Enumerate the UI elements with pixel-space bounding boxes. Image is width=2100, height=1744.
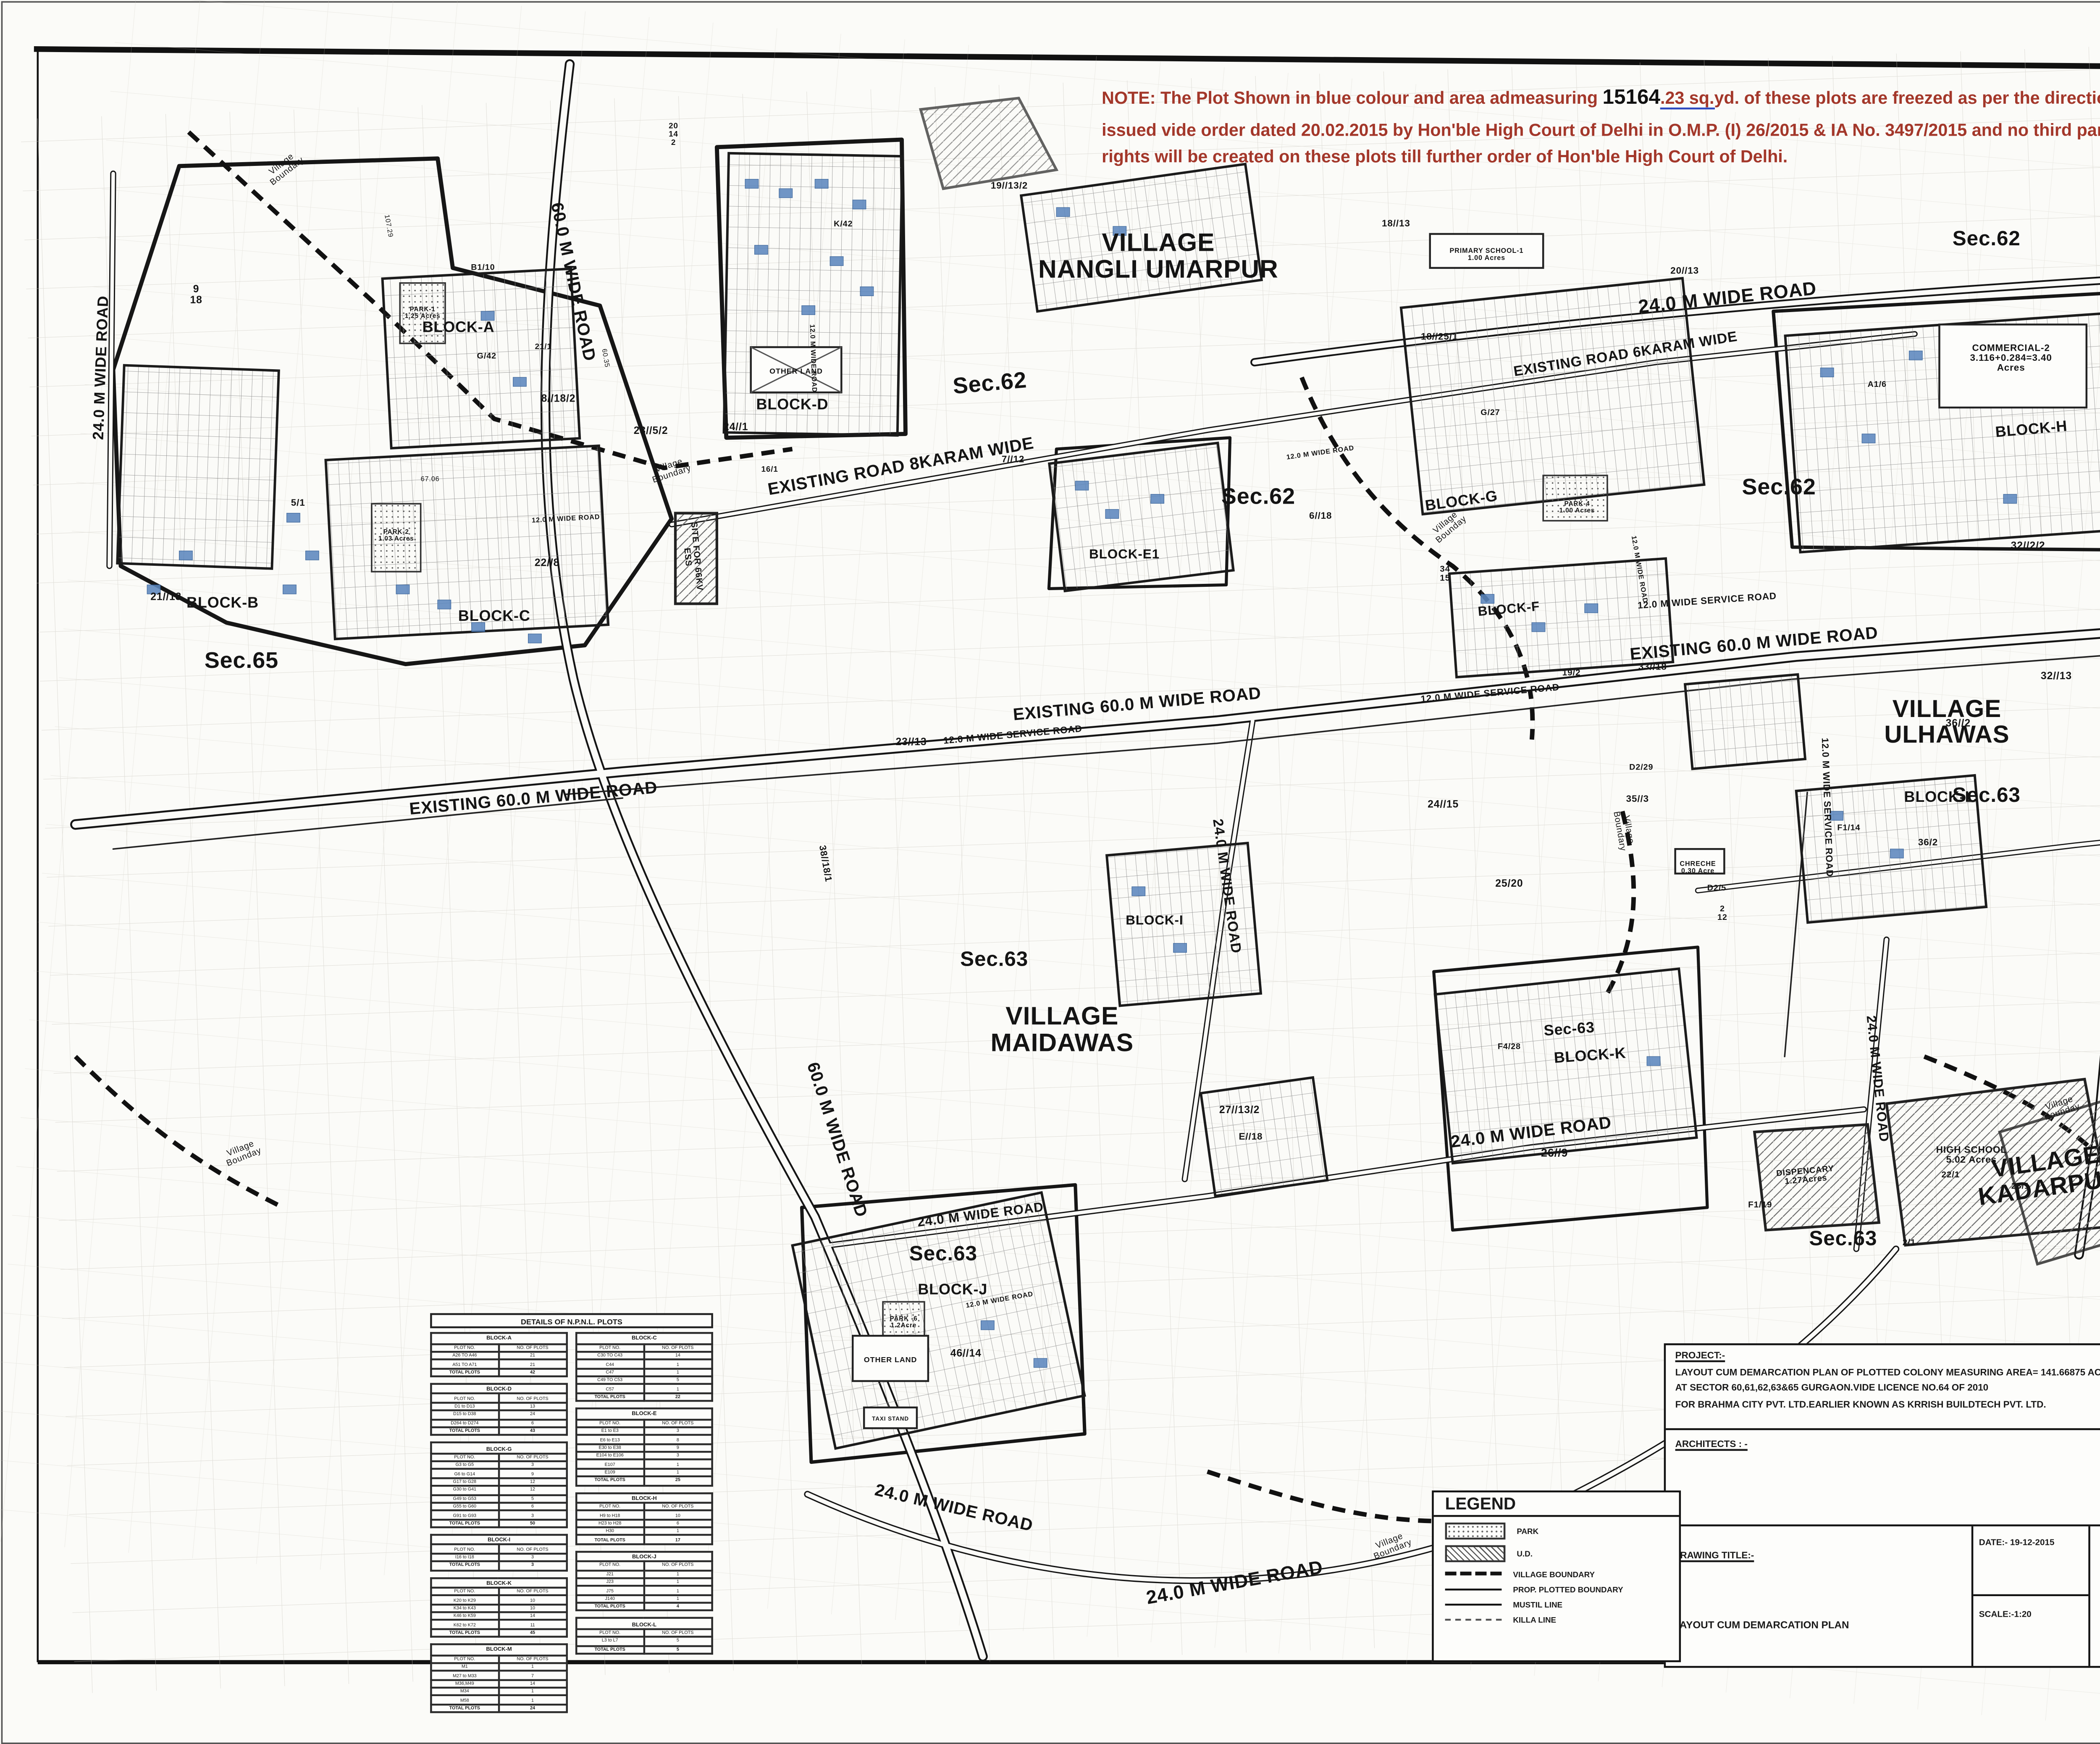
column-header: PLOT NO. xyxy=(576,1562,643,1570)
khasra-label: 27//13/2 xyxy=(1219,1104,1260,1116)
table-row: E104 to E1063 xyxy=(576,1452,712,1460)
sw-dashthick-icon xyxy=(1445,1572,1502,1576)
table-row: J211 xyxy=(576,1570,712,1578)
npnl-block-table: BLOCK-JPLOT NO.NO. OF PLOTSJ211J231J751J… xyxy=(575,1550,713,1612)
khasra-label: 24//1 xyxy=(723,421,748,433)
khasra-label: 36/2 xyxy=(1918,837,1938,847)
table-row: H23 to H286 xyxy=(576,1519,712,1528)
title-block: PROJECT:- LAYOUT CUM DEMARCATION PLAN OF… xyxy=(1664,1343,2100,1668)
frozen-plot xyxy=(306,551,319,560)
khasra-label: 19/2 xyxy=(1562,668,1581,678)
owner-sign-cell: For Brahma City Private Limited Authoris… xyxy=(2090,1526,2100,1666)
npnl-block-name: BLOCK-A xyxy=(431,1333,567,1343)
table-row: TOTAL PLOTS42 xyxy=(431,1368,567,1376)
sw-dashthin-icon xyxy=(1445,1619,1502,1621)
khasra-label: 32//13 xyxy=(2041,670,2072,682)
column-header: NO. OF PLOTS xyxy=(498,1394,567,1403)
frozen-plot xyxy=(528,634,541,643)
project-line: AT SECTOR 60,61,62,63&65 GURGAON.VIDE LI… xyxy=(1675,1383,2100,1395)
table-row: J1401 xyxy=(576,1594,712,1603)
khasra-label: 23/1 xyxy=(2011,1181,2030,1191)
khasra-label: 22//8 xyxy=(535,557,559,569)
khasra-label: G/42 xyxy=(477,351,496,360)
date-scale-cell: DATE:- 19-12-2015 SCALE:-1:20 xyxy=(1973,1526,2090,1666)
frozen-plot xyxy=(1132,887,1145,896)
site-label-high-school: HIGH SCHOOL5.02 Acres xyxy=(1936,1144,2007,1165)
drawing-title-cell: DRAWING TITLE:- LAYOUT CUM DEMARCATION P… xyxy=(1666,1526,1973,1666)
table-row: M36,M4914 xyxy=(431,1679,567,1688)
table-row: K46 to K5914 xyxy=(431,1612,567,1621)
frozen-plot xyxy=(1481,594,1494,604)
architects-label: ARCHITECTS : - xyxy=(1675,1439,1748,1451)
khasra-label: 8//18/2 xyxy=(541,393,576,404)
sector-label: Sec.65 xyxy=(205,648,278,673)
site-label-taxi-stand: TAXI STAND xyxy=(872,1416,909,1422)
block-label: BLOCK-L xyxy=(1904,788,1975,805)
khasra-label: 35//3 xyxy=(1626,793,1649,804)
khasra-label: 23//5/2 xyxy=(634,425,668,436)
column-header: NO. OF PLOTS xyxy=(643,1562,712,1570)
npnl-block-table: BLOCK-HPLOT NO.NO. OF PLOTSH9 to H1810H2… xyxy=(575,1492,713,1545)
table-row: C571 xyxy=(576,1385,712,1393)
table-row: D15 to D3824 xyxy=(431,1410,567,1419)
table-row: TOTAL PLOTS5 xyxy=(576,1645,712,1654)
npnl-title: DETAILS OF N.P.N.L. PLOTS xyxy=(430,1313,713,1329)
dim-label: 67.06 xyxy=(421,475,440,483)
table-row: E1091 xyxy=(576,1468,712,1477)
table-row: M27 to M337 xyxy=(431,1671,567,1680)
project-section: PROJECT:- LAYOUT CUM DEMARCATION PLAN OF… xyxy=(1666,1345,2100,1430)
table-row: TOTAL PLOTS24 xyxy=(431,1704,567,1712)
legend-label: VILLAGE BOUNDARY xyxy=(1513,1569,1595,1578)
khasra-label: 5/1 xyxy=(291,497,305,508)
khasra-label: 23//13 xyxy=(895,736,927,748)
khasra-label: 24//15 xyxy=(1428,798,1459,810)
table-row: TOTAL PLOTS45 xyxy=(431,1629,567,1637)
frozen-area-value: 15164 xyxy=(1603,87,1660,110)
block-label: BLOCK-I xyxy=(1126,913,1183,927)
block-label: BLOCK-C xyxy=(458,607,530,624)
legend-item: PROP. PLOTTED BOUNDARY xyxy=(1445,1584,1668,1594)
frozen-plot xyxy=(1820,368,1833,377)
column-header: PLOT NO. xyxy=(431,1587,498,1596)
table-row: TOTAL PLOTS22 xyxy=(576,1393,712,1401)
table-row: G91 to G933 xyxy=(431,1511,567,1519)
block-label: BLOCK-E1 xyxy=(1089,547,1160,562)
project-label: PROJECT:- xyxy=(1675,1351,1725,1362)
frozen-plot xyxy=(755,245,768,255)
table-row: J751 xyxy=(576,1586,712,1595)
table-row: K62 to K7211 xyxy=(431,1621,567,1629)
legend-item: KILLA LINE xyxy=(1445,1615,1668,1624)
sector-label: Sec.63 xyxy=(960,948,1028,971)
column-header: NO. OF PLOTS xyxy=(643,1343,712,1352)
sector-label: Sec.62 xyxy=(1742,474,1816,499)
site-label-park4: PARK-41.00 Acres xyxy=(1559,500,1595,514)
table-row: I16 to I183 xyxy=(431,1553,567,1562)
frozen-plot xyxy=(1862,434,1875,443)
npnl-block-name: BLOCK-G xyxy=(431,1443,567,1453)
column-header: PLOT NO. xyxy=(431,1655,498,1663)
npnl-block-table: BLOCK-GPLOT NO.NO. OF PLOTSG3 to G53G6 t… xyxy=(430,1442,568,1528)
npnl-block-table: BLOCK-CPLOT NO.NO. OF PLOTSC30 TO C4314C… xyxy=(575,1332,713,1402)
frozen-plot xyxy=(1532,622,1545,632)
column-header: PLOT NO. xyxy=(576,1502,643,1511)
column-header: NO. OF PLOTS xyxy=(643,1502,712,1511)
npnl-block-table: BLOCK-KPLOT NO.NO. OF PLOTSK20 to K2910K… xyxy=(430,1576,568,1638)
table-row: G30 to G4112 xyxy=(431,1486,567,1494)
table-row: D264 to D2746 xyxy=(431,1419,567,1427)
column-header: PLOT NO. xyxy=(431,1394,498,1403)
table-row: TOTAL PLOTS50 xyxy=(431,1519,567,1528)
legend-label: PROP. PLOTTED BOUNDARY xyxy=(1513,1584,1623,1594)
khasra-label: 36//2 xyxy=(1946,717,1971,729)
sector-label: Sec.63 xyxy=(909,1242,977,1265)
frozen-plot xyxy=(981,1321,994,1330)
block-label: BLOCK-B xyxy=(186,594,259,611)
frozen-plot xyxy=(287,513,300,523)
table-row: K20 to K2910 xyxy=(431,1596,567,1604)
table-row: M341 xyxy=(431,1688,567,1696)
khasra-label: 25/20 xyxy=(1495,878,1523,889)
frozen-plot xyxy=(1056,207,1069,217)
site-label-park1: PARK-11.25 Acres xyxy=(405,306,441,320)
table-row: M11 xyxy=(431,1663,567,1671)
legend-label: PARK xyxy=(1517,1527,1538,1536)
legend-label: MUSTIL LINE xyxy=(1513,1600,1562,1609)
frozen-plot xyxy=(1909,351,1922,360)
npnl-block-name: BLOCK-K xyxy=(431,1577,567,1587)
khasra-label: 19//13/2 xyxy=(991,180,1028,191)
legend: LEGEND PARKU.D.VILLAGE BOUNDARYPROP. PLO… xyxy=(1432,1490,1681,1662)
khasra-label: 20//13 xyxy=(1670,265,1699,276)
khasra-label: 2/1 xyxy=(1903,1238,1916,1248)
column-header: PLOT NO. xyxy=(431,1545,498,1553)
block-label: BLOCK-A xyxy=(423,318,495,336)
npnl-block-name: BLOCK-E xyxy=(576,1409,712,1419)
table-row: C441 xyxy=(576,1360,712,1368)
column-header: NO. OF PLOTS xyxy=(498,1655,567,1663)
project-line: FOR BRAHMA CITY PVT. LTD.EARLIER KNOWN A… xyxy=(1675,1400,2100,1411)
sw-dots-icon xyxy=(1445,1523,1506,1540)
table-row: H301 xyxy=(576,1527,712,1536)
npnl-block-name: BLOCK-M xyxy=(431,1644,567,1655)
column-header: PLOT NO. xyxy=(576,1419,643,1427)
column-header: PLOT NO. xyxy=(431,1453,498,1461)
table-row: M581 xyxy=(431,1696,567,1705)
column-header: PLOT NO. xyxy=(576,1629,643,1637)
khasra-label: 18//25/1 xyxy=(1421,331,1458,342)
sector-label: Sec.62 xyxy=(1953,227,2021,250)
khasra-label: 46//14 xyxy=(950,1348,982,1359)
frozen-plot xyxy=(745,179,758,189)
date-value: DATE:- 19-12-2015 xyxy=(1979,1538,2055,1547)
frozen-plot xyxy=(438,600,451,609)
table-row: G17 to G2812 xyxy=(431,1478,567,1486)
frozen-plot xyxy=(396,585,409,594)
frozen-plot xyxy=(1151,494,1164,504)
khasra-label: 33//18 xyxy=(1638,662,1667,672)
khasra-label: 22/1 xyxy=(1942,1170,1960,1179)
npnl-block-name: BLOCK-I xyxy=(431,1535,567,1545)
site-label-park2: PARK-21.03 Acres xyxy=(378,528,414,542)
khasra-label: 3415 xyxy=(1440,564,1450,583)
khasra-label: 21/1 xyxy=(535,342,551,351)
khasra-label: 6//18 xyxy=(1309,510,1332,521)
scale-value: SCALE:-1:20 xyxy=(1979,1609,2032,1618)
table-row: H9 to H1810 xyxy=(576,1511,712,1519)
table-row: TOTAL PLOTS17 xyxy=(576,1536,712,1544)
frozen-plot xyxy=(779,189,792,198)
npnl-block-name: BLOCK-D xyxy=(431,1384,567,1394)
architects-section: ARCHITECTS : - SHEET NO.-1 CA/2012/58144… xyxy=(1666,1430,2100,1526)
khasra-label: 21//13 xyxy=(150,591,181,602)
block-label: BLOCK-J xyxy=(918,1280,987,1297)
frozen-plot xyxy=(1105,510,1118,519)
table-row: C30 TO C4314 xyxy=(576,1352,712,1360)
sector-label: Sec.63 xyxy=(1809,1227,1877,1250)
table-row: G55 to G606 xyxy=(431,1502,567,1511)
frozen-plot xyxy=(513,377,526,386)
khasra-label: 16/1 xyxy=(761,465,778,473)
sw-solidthick-icon xyxy=(1445,1588,1502,1590)
table-row: E6 to E138 xyxy=(576,1435,712,1444)
npnl-block-name: BLOCK-H xyxy=(576,1492,712,1502)
khasra-label: F1/19 xyxy=(1748,1200,1772,1210)
note-label: NOTE: xyxy=(1102,89,1155,108)
legend-item: MUSTIL LINE xyxy=(1445,1600,1668,1609)
site-label-park6: PARK -61.2Acre xyxy=(890,1315,917,1329)
frozen-plot xyxy=(802,306,815,315)
column-header: NO. OF PLOTS xyxy=(498,1343,567,1352)
legend-label: KILLA LINE xyxy=(1513,1615,1556,1624)
frozen-plot xyxy=(853,200,866,209)
legend-title: LEGEND xyxy=(1434,1492,1679,1517)
npnl-block-table: BLOCK-MPLOT NO.NO. OF PLOTSM11M27 to M33… xyxy=(430,1644,568,1713)
column-header: NO. OF PLOTS xyxy=(643,1629,712,1637)
khasra-label: D2/29 xyxy=(1629,763,1653,772)
table-row: E1 to E33 xyxy=(576,1427,712,1436)
court-note: NOTE: The Plot Shown in blue colour and … xyxy=(1102,83,2100,172)
khasra-label: G/27 xyxy=(1480,408,1500,417)
frozen-plot xyxy=(2003,494,2016,504)
table-row: J231 xyxy=(576,1578,712,1586)
frozen-plot xyxy=(1075,481,1088,490)
frozen-plot xyxy=(1034,1358,1047,1368)
table-row: G3 to G53 xyxy=(431,1461,567,1470)
table-row: C471 xyxy=(576,1368,712,1376)
frozen-plot xyxy=(815,179,828,189)
column-header: NO. OF PLOTS xyxy=(643,1419,712,1427)
site-label-chreche: CHRECHE0.30 Acre xyxy=(1680,860,1716,875)
village-label-maidawas: VILLAGEMAIDAWAS xyxy=(991,1001,1134,1057)
table-row: K34 to K4310 xyxy=(431,1604,567,1613)
frozen-plot xyxy=(1647,1056,1660,1066)
npnl-block-name: BLOCK-L xyxy=(576,1619,712,1629)
table-row: TOTAL PLOTS43 xyxy=(431,1427,567,1436)
table-row: L3 to L75 xyxy=(576,1637,712,1645)
legend-label: U.D. xyxy=(1517,1550,1533,1559)
legend-item: VILLAGE BOUNDARY xyxy=(1445,1569,1668,1578)
scanned-drawing-page: VILLAGENANGLI UMARPURVILLAGEULHAWASVILLA… xyxy=(0,0,2100,1744)
npnl-block-name: BLOCK-J xyxy=(576,1552,712,1562)
table-row: E30 to E389 xyxy=(576,1444,712,1452)
khasra-label: B1/10 xyxy=(471,263,495,272)
npnl-plots-panel: DETAILS OF N.P.N.L. PLOTS BLOCK-APLOT NO… xyxy=(430,1313,713,1719)
khasra-label: F1/14 xyxy=(1837,823,1860,832)
site-label-other-land: OTHER LAND xyxy=(864,1355,917,1364)
npnl-block-table: BLOCK-IPLOT NO.NO. OF PLOTSI16 to I183TO… xyxy=(430,1534,568,1571)
block-label: BLOCK-D xyxy=(756,396,829,413)
column-header: NO. OF PLOTS xyxy=(498,1587,567,1596)
sector-label: Sec.62 xyxy=(1221,483,1295,509)
frozen-plot xyxy=(1890,849,1903,858)
khasra-label: F4/28 xyxy=(1498,1042,1521,1051)
frozen-plot xyxy=(860,287,873,296)
table-row: TOTAL PLOTS25 xyxy=(576,1477,712,1485)
npnl-block-table: BLOCK-DPLOT NO.NO. OF PLOTSD1 to D1313D1… xyxy=(430,1383,568,1437)
khasra-label: K/42 xyxy=(834,219,853,229)
column-header: PLOT NO. xyxy=(431,1343,498,1352)
table-row: A26 TO A4621 xyxy=(431,1352,567,1360)
table-row: G49 to G535 xyxy=(431,1494,567,1503)
khasra-label: E//18 xyxy=(1239,1131,1263,1142)
frozen-plot xyxy=(283,585,296,594)
table-row: A51 TO A7121 xyxy=(431,1360,567,1368)
table-row: TOTAL PLOTS4 xyxy=(576,1603,712,1611)
site-label-other-land: OTHER LAND xyxy=(769,367,823,375)
npnl-block-table: BLOCK-APLOT NO.NO. OF PLOTSA26 TO A4621A… xyxy=(430,1332,568,1377)
khasra-label: 18//13 xyxy=(1382,218,1410,229)
table-row: TOTAL PLOTS3 xyxy=(431,1562,567,1570)
drawing-title: LAYOUT CUM DEMARCATION PLAN xyxy=(1673,1621,1964,1632)
sector-label: Sec-63 xyxy=(1543,1018,1595,1039)
npnl-block-name: BLOCK-C xyxy=(576,1333,712,1343)
khasra-label: D2/5 xyxy=(1707,883,1726,893)
table-row: E1071 xyxy=(576,1460,712,1468)
khasra-label: A1/6 xyxy=(1868,380,1887,389)
sw-hatch-icon xyxy=(1445,1546,1506,1563)
khasra-label: 26//9 xyxy=(1541,1146,1568,1159)
frozen-plot xyxy=(179,551,192,560)
frozen-plot xyxy=(1585,604,1598,613)
column-header: NO. OF PLOTS xyxy=(498,1545,567,1553)
table-row: C49 TO C535 xyxy=(576,1376,712,1385)
drawing-sheet: VILLAGENANGLI UMARPURVILLAGEULHAWASVILLA… xyxy=(0,0,2100,1744)
legend-item: PARK xyxy=(1445,1523,1668,1540)
khasra-label: 7//12 xyxy=(1002,454,1024,464)
column-header: PLOT NO. xyxy=(576,1343,643,1352)
frozen-plot xyxy=(830,257,843,266)
legend-item: U.D. xyxy=(1445,1546,1668,1563)
sw-solidthin-icon xyxy=(1445,1604,1502,1605)
column-header: NO. OF PLOTS xyxy=(498,1453,567,1461)
npnl-block-table: BLOCK-LPLOT NO.NO. OF PLOTSL3 to L75TOTA… xyxy=(575,1618,713,1655)
table-row: G6 to G149 xyxy=(431,1470,567,1478)
khasra-label: 32//2/2 xyxy=(2011,540,2045,552)
project-line: LAYOUT CUM DEMARCATION PLAN OF PLOTTED C… xyxy=(1675,1367,2100,1379)
frozen-plot xyxy=(1173,943,1186,953)
npnl-block-table: BLOCK-EPLOT NO.NO. OF PLOTSE1 to E33E6 t… xyxy=(575,1408,713,1486)
table-row: D1 to D1313 xyxy=(431,1403,567,1411)
